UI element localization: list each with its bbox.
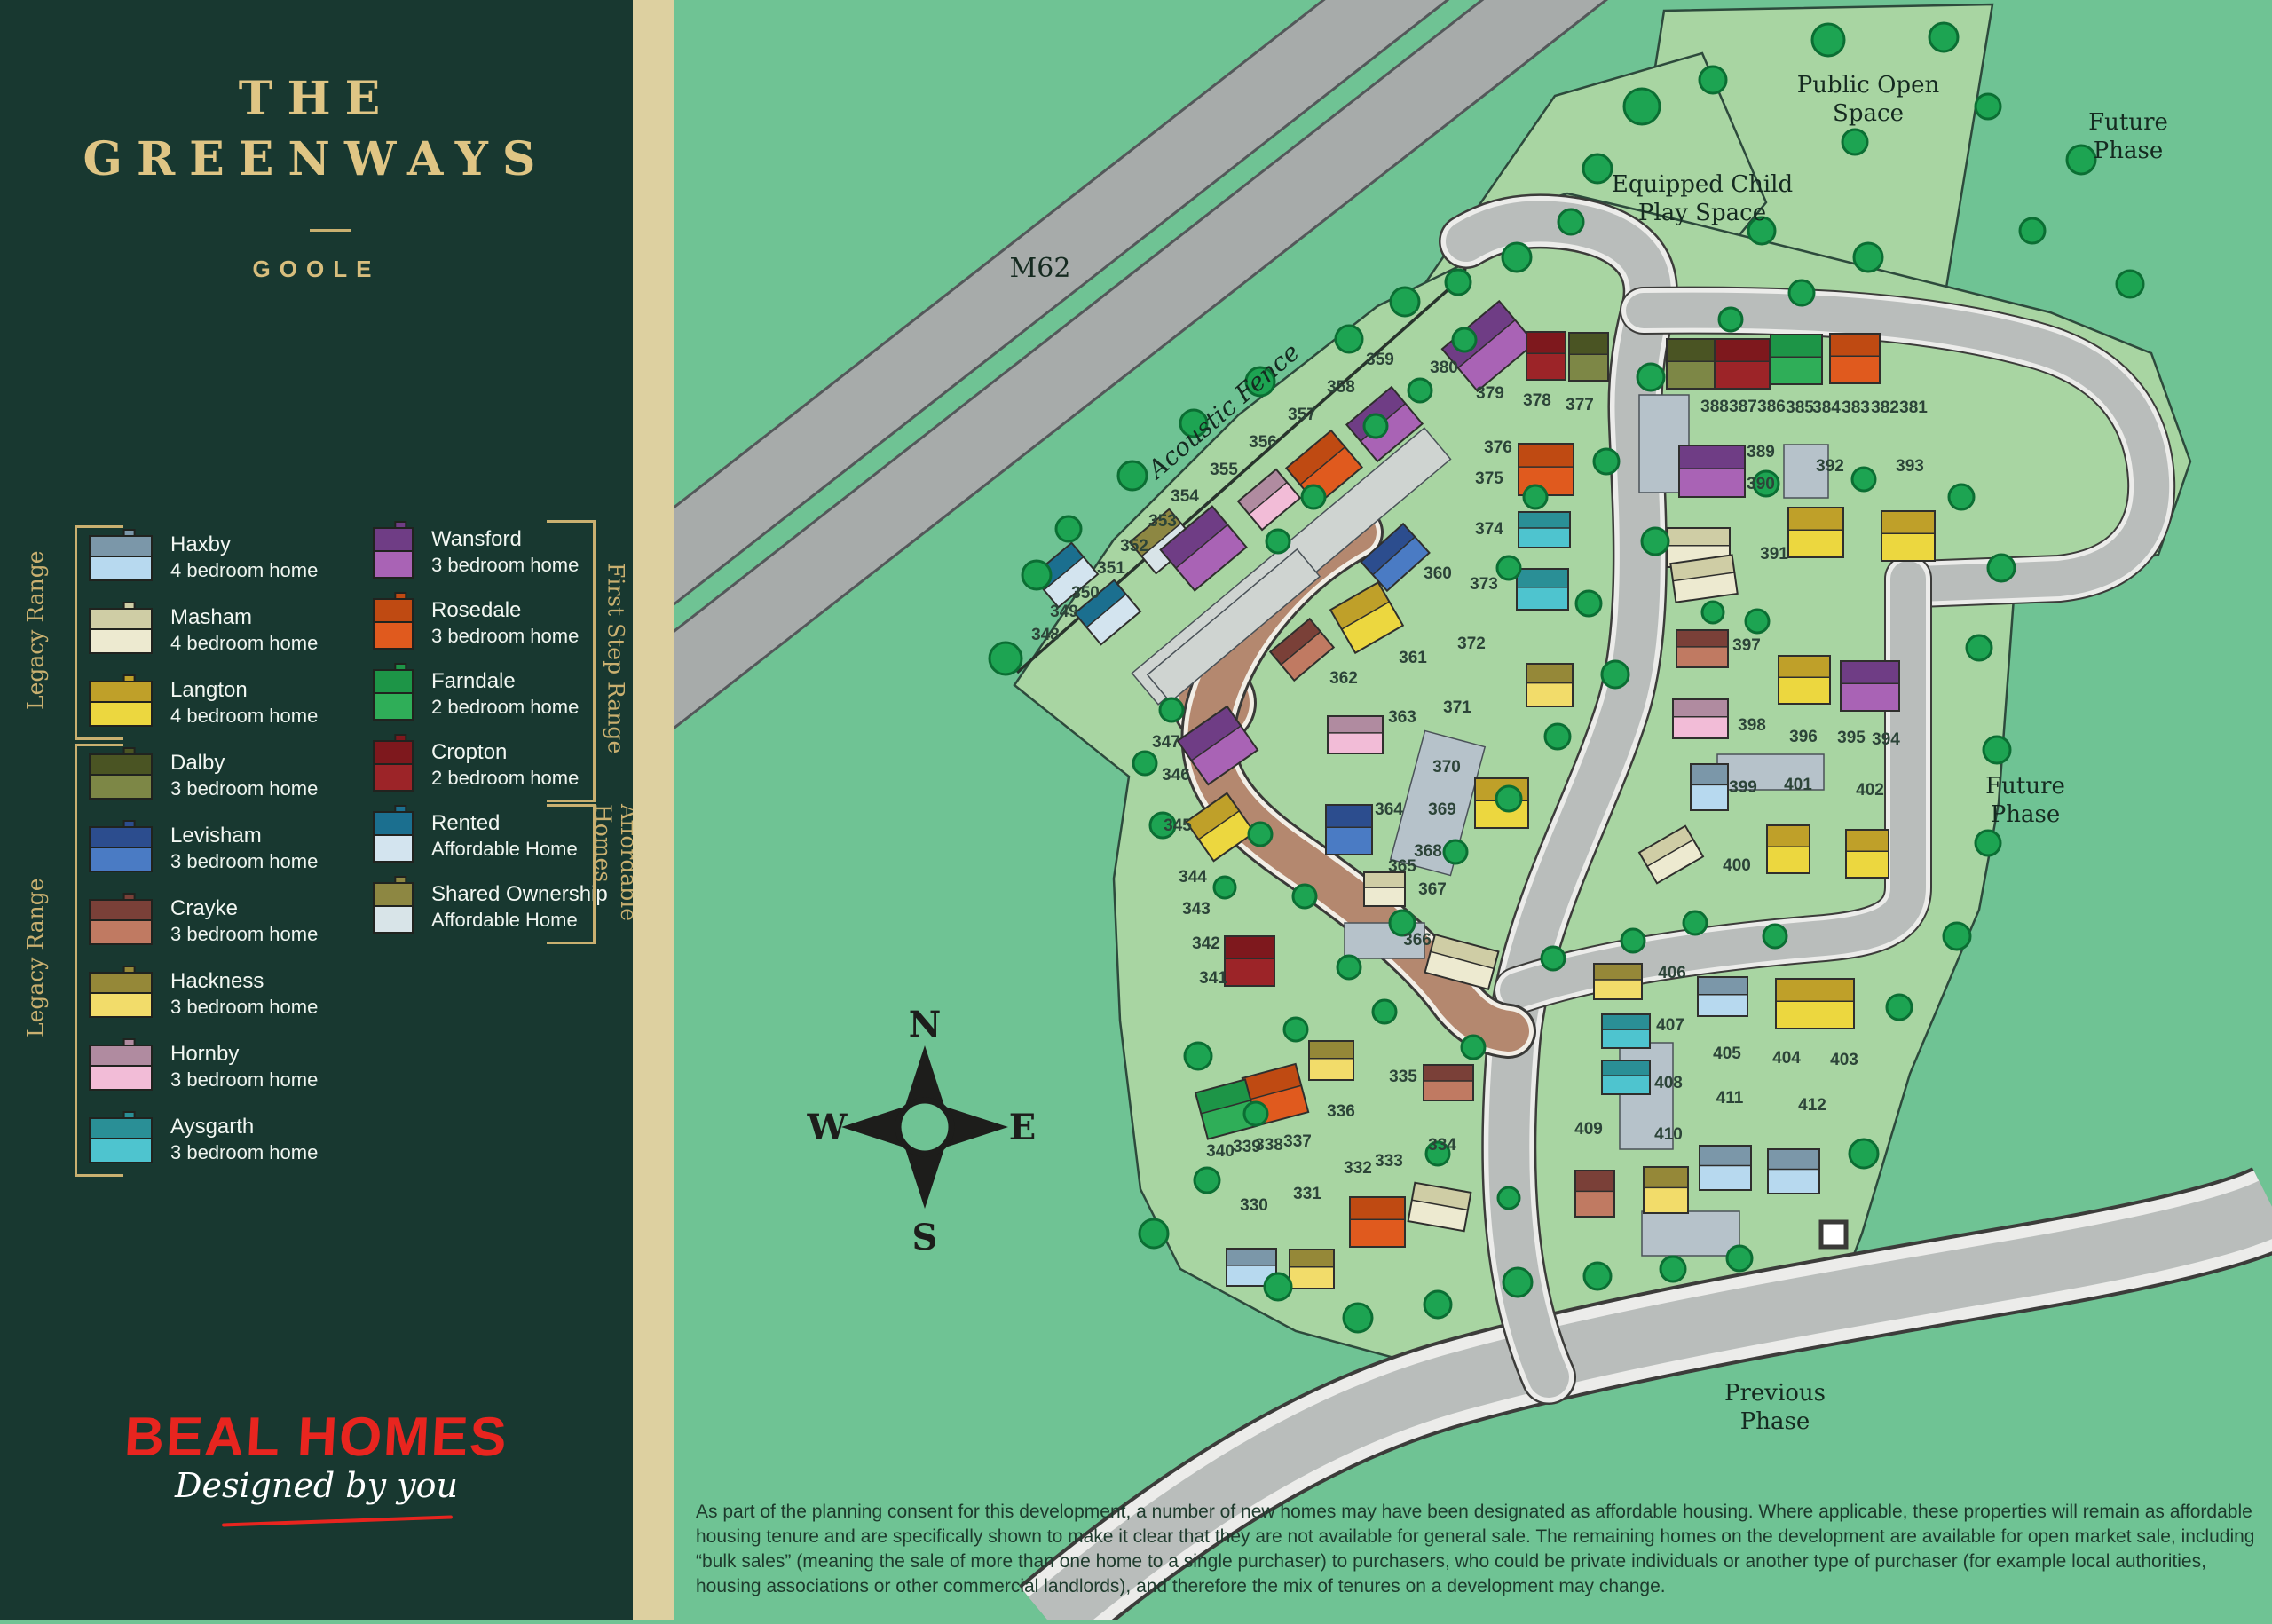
house-crayke — [1676, 630, 1728, 667]
house-masham — [1670, 555, 1737, 602]
title-divider — [310, 229, 351, 232]
tree — [1576, 591, 1601, 616]
tree — [1988, 555, 2015, 581]
tree — [1621, 929, 1645, 952]
house-cropton — [1715, 339, 1770, 389]
tree — [1727, 1246, 1752, 1271]
tree — [1446, 270, 1471, 295]
house-rosedale — [1830, 334, 1880, 383]
house-crayke — [1575, 1171, 1614, 1217]
house-levisham — [1326, 805, 1372, 855]
plot-number: 386 — [1757, 398, 1786, 416]
plot-number: 398 — [1738, 716, 1766, 735]
tree — [1022, 561, 1051, 589]
tree — [1503, 243, 1531, 272]
tree — [1408, 379, 1432, 402]
plot-number: 380 — [1430, 359, 1458, 377]
legend-item-name: Masham — [170, 604, 318, 631]
tree — [1133, 752, 1156, 775]
tree — [2020, 218, 2045, 243]
plot-number: 374 — [1475, 520, 1503, 539]
wansford-icon — [373, 521, 414, 584]
legend-group-bracket — [547, 804, 596, 944]
farndale-icon — [373, 663, 414, 726]
plot-number: 331 — [1293, 1185, 1321, 1203]
cropton-icon — [373, 734, 414, 797]
tree — [1444, 840, 1467, 863]
future-phase-right-label-2: Phase — [1991, 801, 2060, 828]
plot-number: 404 — [1772, 1049, 1801, 1068]
tree — [1602, 661, 1629, 688]
plot-number: 345 — [1164, 816, 1192, 835]
plot-number: 389 — [1747, 443, 1775, 461]
plot-number: 370 — [1432, 758, 1461, 777]
tree — [1337, 956, 1361, 979]
house-langton — [1776, 979, 1854, 1029]
compass-e: E — [1009, 1107, 1037, 1148]
plot-number: 357 — [1288, 406, 1316, 424]
plot-number: 384 — [1812, 398, 1841, 417]
rented-icon — [373, 805, 414, 868]
legend-item-name: Crayke — [170, 895, 318, 922]
tree — [1929, 23, 1958, 51]
tree — [1789, 280, 1814, 305]
tree — [1812, 24, 1844, 56]
tree — [1542, 947, 1565, 970]
plot-number: 376 — [1484, 438, 1512, 457]
public-open-space-label-2: Space — [1833, 100, 1904, 127]
legend-item-desc: 3 bedroom home — [170, 1068, 318, 1092]
house-type-icon — [373, 734, 414, 792]
plot-number: 342 — [1192, 934, 1220, 953]
tree — [1302, 485, 1325, 508]
legend-group-label: Legacy Range — [20, 744, 51, 1171]
tree — [1344, 1304, 1372, 1332]
tree — [1336, 326, 1362, 352]
tree — [1854, 243, 1882, 272]
plot-number: 366 — [1403, 931, 1432, 950]
house-wansford — [1679, 445, 1745, 497]
tree — [1545, 724, 1570, 749]
plot-number: 407 — [1656, 1016, 1684, 1035]
plot-number: 410 — [1654, 1125, 1683, 1144]
plot-number: 346 — [1162, 766, 1190, 784]
plot-number: 393 — [1896, 457, 1924, 476]
plot-number: 365 — [1388, 857, 1416, 876]
m62-label: M62 — [1010, 253, 1071, 284]
tree — [1056, 516, 1081, 541]
legend-item-desc: 3 bedroom home — [170, 1140, 318, 1165]
plot-number: 362 — [1329, 669, 1358, 688]
house-farndale — [1771, 335, 1822, 384]
plot-number: 396 — [1789, 728, 1818, 746]
tree — [1852, 468, 1875, 491]
plot-number: 338 — [1255, 1136, 1283, 1155]
house-masham — [1364, 872, 1405, 906]
tree — [1661, 1257, 1685, 1281]
plot-number: 367 — [1418, 880, 1447, 899]
tree — [1702, 602, 1724, 623]
location-label: GOOLE — [0, 256, 633, 283]
legend-item-desc: 3 bedroom home — [170, 995, 318, 1020]
house-hornby — [1328, 716, 1383, 753]
tree — [1185, 1043, 1211, 1069]
plot-number: 397 — [1732, 636, 1761, 655]
legend-item-desc: 4 bedroom home — [170, 704, 318, 729]
house-langton — [1767, 825, 1810, 873]
plot-number: 347 — [1152, 733, 1180, 752]
play-space-label: Equipped Child — [1612, 171, 1793, 198]
legend-item-name: Aysgarth — [170, 1114, 318, 1140]
plot-number: 344 — [1179, 868, 1207, 887]
house-langton — [1779, 656, 1830, 704]
plot-number: 371 — [1443, 698, 1471, 717]
legend-group-label: First Step Range — [600, 520, 632, 797]
tree — [1498, 1187, 1519, 1209]
plot-number: 375 — [1475, 469, 1503, 488]
house-haxby — [1768, 1149, 1819, 1194]
plot-number: 405 — [1713, 1045, 1741, 1063]
tree — [1118, 461, 1147, 490]
plot-number: 372 — [1457, 635, 1486, 653]
house-langton — [1788, 508, 1843, 557]
house-aysgarth — [1602, 1014, 1650, 1048]
tree — [1558, 209, 1583, 234]
title-line-1: THE — [0, 69, 633, 130]
plot-number: 337 — [1283, 1132, 1312, 1151]
legend-item-name: Levisham — [170, 823, 318, 849]
plot-number: 379 — [1476, 384, 1504, 403]
house-cropton — [1526, 332, 1566, 380]
plot-number: 373 — [1470, 575, 1498, 594]
previous-phase-label-2: Phase — [1740, 1408, 1810, 1435]
tree — [1391, 288, 1419, 316]
tree — [1949, 485, 1974, 509]
house-dalby — [1569, 333, 1608, 381]
house-haxby — [1700, 1146, 1751, 1190]
legend-item-name: Hackness — [170, 968, 318, 995]
tree — [1503, 1268, 1532, 1297]
plot-number: 383 — [1842, 398, 1870, 417]
plot-number: 392 — [1816, 457, 1844, 476]
future-phase-top-label-2: Phase — [2094, 138, 2163, 164]
house-rosedale — [1350, 1197, 1405, 1247]
plot-number: 352 — [1120, 537, 1148, 556]
tree — [1265, 1273, 1291, 1300]
house-type-icon — [373, 876, 414, 934]
legend-item-name: Haxby — [170, 532, 318, 558]
plot-number: 343 — [1182, 900, 1211, 918]
legend-item-name: Dalby — [170, 750, 318, 777]
tree — [1496, 786, 1521, 811]
house-hackness — [1644, 1167, 1688, 1213]
shared-icon — [373, 876, 414, 939]
public-open-space-label: Public Open — [1797, 72, 1940, 99]
house-hornby — [1673, 699, 1728, 738]
play-space-label-2: Play Space — [1638, 200, 1766, 226]
tree — [1976, 94, 2000, 119]
title-line-2: GREENWAYS — [0, 130, 633, 190]
driveway — [1642, 1211, 1739, 1256]
legend-group-bracket — [75, 525, 123, 740]
plot-number: 349 — [1050, 603, 1078, 621]
tree — [1684, 911, 1707, 934]
tree — [1637, 364, 1664, 390]
legend-item-name: Langton — [170, 677, 318, 704]
tree — [1584, 1263, 1611, 1289]
plot-number: 364 — [1375, 800, 1403, 819]
plot-number: 412 — [1798, 1096, 1826, 1115]
tree — [1364, 414, 1387, 438]
tree — [1642, 528, 1668, 555]
plot-number: 368 — [1414, 842, 1442, 861]
legend-group-bracket — [547, 520, 596, 802]
tree — [1284, 1018, 1307, 1041]
house-aysgarth — [1602, 1060, 1650, 1094]
plot-number: 341 — [1199, 969, 1227, 988]
house-langton — [1846, 830, 1889, 878]
legend-item-desc: 3 bedroom home — [170, 922, 318, 947]
sidebar: THE GREENWAYS GOOLE Haxby 4 bedroom home… — [0, 0, 633, 1620]
brand-underline — [222, 1515, 453, 1526]
plot-number: 395 — [1837, 729, 1866, 747]
tree — [1719, 308, 1742, 331]
tree — [1594, 449, 1619, 474]
plot-number: 350 — [1071, 584, 1100, 603]
house-cropton — [1225, 936, 1274, 986]
page-title: THE GREENWAYS — [0, 69, 633, 190]
house-aysgarth — [1517, 569, 1568, 610]
plot-number: 390 — [1747, 475, 1775, 493]
tree — [1140, 1219, 1168, 1248]
house-haxby — [1698, 977, 1747, 1016]
legend-item-desc: 4 bedroom home — [170, 558, 318, 583]
house-wansford — [1841, 661, 1899, 711]
compass-s: S — [912, 1217, 938, 1258]
tree — [1984, 737, 2010, 763]
plot-number: 406 — [1658, 964, 1686, 982]
tree — [1453, 328, 1476, 351]
plot-number: 363 — [1388, 708, 1416, 727]
tree — [1887, 995, 1912, 1020]
legend-item-desc: 3 bedroom home — [170, 849, 318, 874]
plot-number: 361 — [1399, 649, 1427, 667]
compass-n: N — [909, 1004, 942, 1045]
plot-number: 330 — [1240, 1196, 1268, 1215]
site-map: 3483493503513523533543553563573583593803… — [674, 0, 2272, 1620]
house-hackness — [1526, 664, 1573, 706]
house-type-icon — [373, 592, 414, 650]
legend-group-bracket — [75, 744, 123, 1177]
site-plan-svg: 3483493503513523533543553563573583593803… — [674, 0, 2272, 1620]
plot-number: 360 — [1424, 564, 1452, 583]
tree — [1524, 485, 1547, 508]
house-hackness — [1290, 1250, 1334, 1289]
tree — [1624, 89, 1660, 124]
plot-number: 400 — [1723, 856, 1751, 875]
tree — [1373, 1000, 1396, 1023]
plot-number: 385 — [1786, 398, 1814, 417]
plot-number: 332 — [1344, 1159, 1372, 1178]
plot-number: 348 — [1031, 626, 1060, 644]
plot-number: 358 — [1327, 378, 1355, 397]
house-hackness — [1594, 964, 1642, 999]
plot-number: 408 — [1654, 1074, 1683, 1092]
house-aysgarth — [1519, 512, 1570, 548]
plot-number: 382 — [1871, 398, 1899, 417]
tree — [1424, 1291, 1451, 1318]
house-dalby — [1667, 339, 1715, 389]
house-haxby — [1691, 764, 1728, 810]
plot-number: 411 — [1716, 1089, 1744, 1108]
house-crayke — [1424, 1065, 1473, 1100]
plot-number: 387 — [1729, 398, 1757, 416]
plot-number: 409 — [1574, 1120, 1603, 1139]
legend-item-desc: 3 bedroom home — [170, 777, 318, 801]
tree — [1842, 130, 1867, 154]
house-type-icon — [373, 805, 414, 863]
house-hackness — [1309, 1041, 1353, 1080]
legend-item-name: Hornby — [170, 1041, 318, 1068]
plot-number: 336 — [1327, 1102, 1355, 1121]
tree — [1214, 877, 1235, 898]
plot-number: 354 — [1171, 487, 1199, 506]
plot-number: 351 — [1097, 559, 1125, 578]
brand-logo: BEAL HOMES — [0, 1406, 635, 1469]
tree — [1746, 610, 1769, 633]
plot-number: 333 — [1375, 1152, 1403, 1171]
legend-group-label: Legacy Range — [20, 525, 51, 735]
plot-number: 335 — [1389, 1068, 1417, 1086]
tree — [1160, 698, 1183, 721]
future-phase-right-label: Future — [1985, 773, 2065, 800]
tree — [2117, 271, 2143, 297]
plot-number: 359 — [1366, 351, 1394, 369]
rosedale-icon — [373, 592, 414, 655]
tree — [1195, 1168, 1219, 1193]
plot-number: 356 — [1249, 433, 1277, 452]
house-type-icon — [373, 521, 414, 579]
substation — [1821, 1222, 1846, 1247]
tree — [1763, 925, 1787, 948]
tree — [1293, 885, 1316, 908]
plot-number: 355 — [1210, 461, 1238, 479]
plot-number: 353 — [1148, 512, 1177, 531]
tree — [1462, 1036, 1485, 1059]
tree — [1266, 530, 1290, 553]
disclaimer-text: As part of the planning consent for this… — [696, 1500, 2258, 1599]
previous-phase-label: Previous — [1724, 1380, 1826, 1407]
tree — [1700, 67, 1726, 93]
plot-number: 401 — [1784, 776, 1812, 794]
plot-number: 377 — [1566, 396, 1594, 414]
plot-number: 340 — [1206, 1142, 1235, 1161]
tree — [1249, 823, 1272, 846]
future-phase-top-label: Future — [2088, 109, 2168, 136]
legend-group-label: Affordable Homes — [600, 804, 632, 939]
tree — [1850, 1139, 1878, 1168]
plot-number: 394 — [1872, 730, 1900, 749]
house-langton — [1881, 511, 1935, 561]
plot-number: 403 — [1830, 1051, 1858, 1069]
plot-number: 334 — [1428, 1136, 1456, 1155]
plot-number: 402 — [1856, 781, 1884, 800]
compass-w: W — [807, 1107, 848, 1148]
legend-item-desc: 4 bedroom home — [170, 631, 318, 656]
tree — [1976, 831, 2000, 855]
plot-number: 369 — [1428, 800, 1456, 819]
tree — [1967, 635, 1992, 660]
plot-number: 399 — [1729, 778, 1757, 797]
tree — [1244, 1102, 1267, 1125]
tree — [1497, 556, 1520, 579]
divider-stripe — [633, 0, 674, 1620]
brand-tagline: Designed by you — [0, 1466, 633, 1505]
plot-number: 378 — [1523, 391, 1551, 410]
tree — [2067, 146, 2095, 174]
tree — [1583, 154, 1612, 183]
tree — [990, 643, 1022, 674]
tree — [1944, 923, 1970, 950]
plot-number: 381 — [1899, 398, 1928, 417]
house-type-icon — [373, 663, 414, 721]
plot-number: 391 — [1760, 545, 1788, 564]
plot-number: 388 — [1700, 398, 1729, 416]
